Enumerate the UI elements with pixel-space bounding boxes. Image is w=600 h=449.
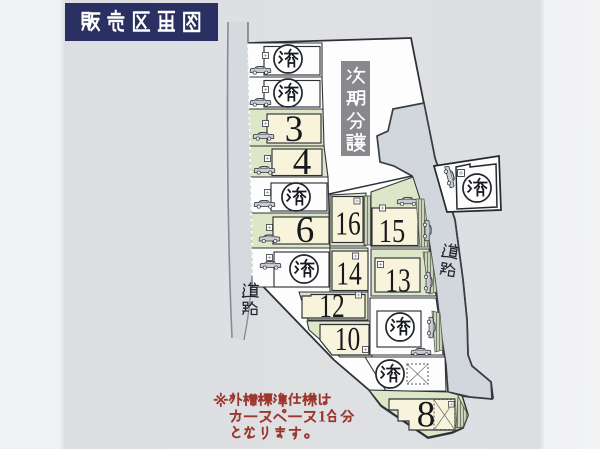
svg-text:16: 16 — [335, 206, 361, 243]
svg-text:1: 1 — [318, 409, 326, 426]
svg-text:13: 13 — [385, 263, 411, 300]
svg-text:12: 12 — [319, 288, 345, 325]
svg-text:8: 8 — [417, 395, 436, 436]
svg-text:6: 6 — [296, 210, 315, 251]
svg-text:10: 10 — [335, 321, 361, 358]
svg-text:14: 14 — [336, 256, 362, 293]
svg-text:4: 4 — [293, 142, 312, 183]
svg-text:15: 15 — [379, 213, 406, 250]
